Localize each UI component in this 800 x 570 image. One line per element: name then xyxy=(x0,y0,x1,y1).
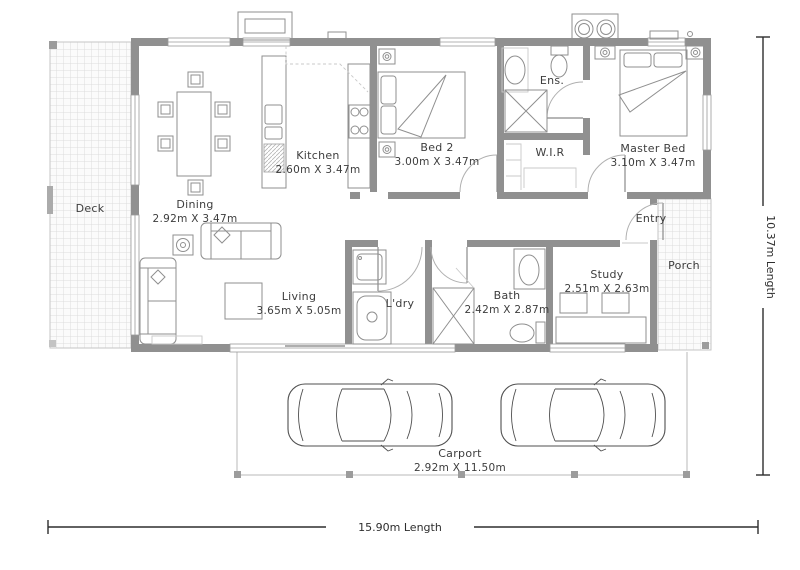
room-size-carport: 2.92m X 11.50m xyxy=(414,462,506,474)
room-label-master: Master Bed xyxy=(620,142,685,155)
floor-plan: Deck Dining 2.92m X 3.47m Kitchen 2.60m … xyxy=(0,0,800,570)
office-chair-icon xyxy=(560,293,587,313)
room-size-study: 2.51m X 2.63m xyxy=(565,283,650,295)
deck-post xyxy=(49,41,57,49)
window xyxy=(131,215,139,335)
car-icon xyxy=(501,379,665,451)
room-label-laundry: L'dry xyxy=(386,297,415,310)
deck-area xyxy=(47,41,131,348)
dimension-width: 15.90m Length xyxy=(48,520,758,534)
dining-chair-icon xyxy=(188,180,203,195)
window xyxy=(131,95,139,185)
window xyxy=(168,38,230,46)
walls xyxy=(131,38,711,352)
bay-window xyxy=(238,12,292,40)
dining-chair-icon xyxy=(215,102,230,117)
shower-icon xyxy=(505,90,547,132)
room-label-ens: Ens. xyxy=(540,74,564,87)
porch-post xyxy=(702,342,709,349)
window xyxy=(243,38,290,46)
basin-icon xyxy=(502,48,528,92)
nightstand-icon xyxy=(379,49,395,64)
nightstand-icon xyxy=(379,142,395,157)
room-size-bed2: 3.00m X 3.47m xyxy=(395,156,480,168)
dining-chair-icon xyxy=(188,72,203,87)
bath-door xyxy=(431,247,467,283)
deck-step xyxy=(47,186,53,214)
room-size-dining: 2.92m X 3.47m xyxy=(153,213,238,225)
overhead-cupboard-line xyxy=(286,46,368,92)
dining-chair-icon xyxy=(158,102,173,117)
room-label-dining: Dining xyxy=(176,198,213,211)
dining-chair-icon xyxy=(158,136,173,151)
stove-icon xyxy=(349,105,370,138)
deck-post xyxy=(49,340,56,347)
room-size-master: 3.10m X 3.47m xyxy=(611,157,696,169)
dining-table-icon xyxy=(177,92,211,176)
room-label-study: Study xyxy=(590,268,623,281)
window xyxy=(703,95,711,150)
room-label-bath: Bath xyxy=(494,289,521,302)
room-label-living: Living xyxy=(282,290,317,303)
toilet-icon xyxy=(551,46,568,77)
office-chair-icon xyxy=(602,293,629,313)
room-label-entry: Entry xyxy=(636,212,667,225)
dimension-height-label: 10.37m Length xyxy=(764,215,777,299)
dimension-height: 10.37m Length xyxy=(756,37,777,475)
dimension-width-label: 15.90m Length xyxy=(358,521,442,534)
room-size-living: 3.65m X 5.05m xyxy=(257,305,342,317)
room-label-bed2: Bed 2 xyxy=(420,141,453,154)
window xyxy=(550,344,625,352)
vanity-basin-icon xyxy=(514,249,545,289)
window xyxy=(440,38,495,46)
washing-machine-icon xyxy=(353,250,386,284)
sofa-icon xyxy=(140,258,202,344)
ensuite-door xyxy=(547,82,583,118)
room-size-kitchen: 2.60m X 3.47m xyxy=(276,164,361,176)
sliding-door xyxy=(230,344,455,352)
vent-icon xyxy=(688,32,693,37)
room-label-porch: Porch xyxy=(668,259,700,272)
room-label-wir: W.I.R xyxy=(536,146,565,159)
car-icon xyxy=(288,379,452,451)
room-label-kitchen: Kitchen xyxy=(296,149,339,162)
bed-icon xyxy=(378,72,465,138)
room-label-carport: Carport xyxy=(438,447,482,460)
kitchen-sink-icon xyxy=(265,105,282,139)
side-table-icon xyxy=(173,235,193,255)
bed-icon xyxy=(619,50,687,136)
room-label-deck: Deck xyxy=(76,202,105,215)
desk-icon xyxy=(556,317,646,343)
sofa-icon xyxy=(201,223,281,259)
room-size-bath: 2.42m X 2.87m xyxy=(465,304,550,316)
nightstand-icon xyxy=(686,46,705,59)
nightstand-icon xyxy=(595,46,615,59)
dining-chair-icon xyxy=(215,136,230,151)
toilet-icon xyxy=(510,322,545,343)
